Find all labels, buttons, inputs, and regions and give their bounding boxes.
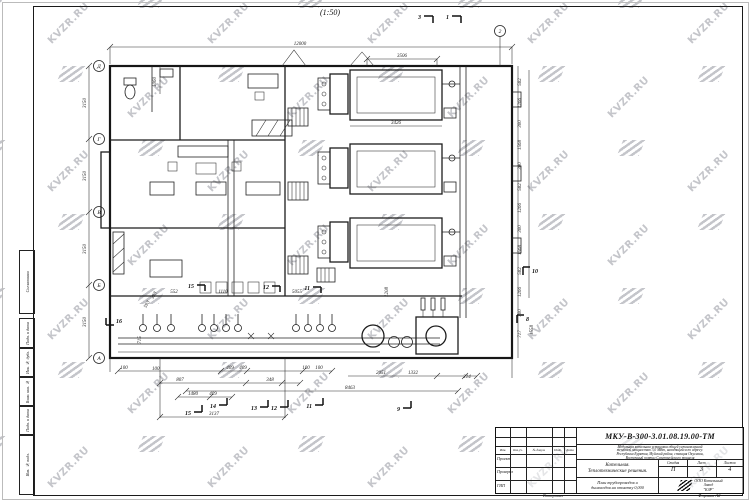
svg-text:1110: 1110: [218, 290, 228, 295]
format-label: Формат А2: [698, 493, 720, 498]
company-logo-icon: [678, 480, 694, 491]
svg-text:13: 13: [251, 406, 257, 412]
svg-text:5055: 5055: [292, 290, 303, 295]
stage-label: Стадия: [659, 460, 687, 467]
scale-label: (1:50): [320, 8, 340, 17]
axis-left-G: Г: [96, 137, 101, 143]
tb-col-dokum: № докум.: [526, 447, 552, 454]
svg-text:300: 300: [518, 225, 523, 233]
floor-plan-svg: (1:50): [0, 0, 750, 500]
room-equipment: [113, 69, 335, 293]
svg-text:15: 15: [185, 411, 191, 417]
svg-text:1: 1: [446, 15, 449, 21]
svg-text:214: 214: [463, 375, 471, 380]
svg-text:11: 11: [306, 404, 312, 410]
stage-table: Стадия Лист Листов П 3 4: [658, 460, 743, 477]
svg-text:100: 100: [315, 366, 323, 371]
sheet-value: 3: [687, 467, 715, 477]
dim-top-3506: 3506: [397, 54, 408, 59]
svg-text:348: 348: [266, 378, 274, 383]
svg-text:1568: 1568: [518, 140, 523, 151]
title-block: Изм. Кол.уч. № докум. Подп. Дата Проект.…: [495, 427, 744, 494]
stage-value: П: [659, 467, 687, 477]
dimension-lines: [86, 44, 529, 420]
tb-col-izm: Изм.: [496, 447, 510, 454]
boiler-body: [350, 218, 442, 268]
svg-text:1480: 1480: [188, 392, 199, 397]
svg-text:9: 9: [397, 407, 400, 413]
svg-text:1266: 1266: [518, 98, 523, 109]
object-name: Котельная. Теплотехнические решения.: [576, 460, 658, 477]
svg-text:16: 16: [116, 319, 122, 325]
sheets-value: 4: [716, 467, 744, 477]
tb-row-proveril: Проверил: [497, 469, 526, 474]
svg-text:593: 593: [144, 300, 152, 309]
boiler-body: [350, 70, 442, 120]
svg-text:8: 8: [526, 317, 529, 323]
svg-text:1060: 1060: [153, 77, 158, 88]
dim-top-overall: 12000: [294, 42, 307, 47]
svg-text:100: 100: [302, 366, 310, 371]
svg-text:582: 582: [518, 78, 523, 86]
svg-text:807: 807: [176, 378, 184, 383]
tb-row-gip: ГИП: [497, 483, 526, 488]
building-walls: [101, 50, 521, 358]
svg-text:3150: 3150: [83, 317, 88, 328]
boiler-unit-1: [288, 70, 460, 126]
svg-text:717: 717: [518, 330, 523, 338]
svg-text:409: 409: [209, 392, 217, 397]
dim-3426: 3426: [391, 121, 402, 126]
svg-text:1266: 1266: [518, 203, 523, 214]
svg-text:12: 12: [263, 285, 269, 291]
dimension-labels: 12000 3506 3426 1060 3150 3150 3150 3150…: [83, 42, 535, 417]
drawing-sheet: KVZR.RUKVZR.RUKVZR.RUKVZR.RUKVZR.RUKVZR.…: [0, 0, 750, 500]
svg-text:8463: 8463: [345, 386, 356, 391]
svg-text:1332: 1332: [408, 371, 419, 376]
copied-label: Копировал: [543, 493, 563, 498]
axis-left-A: А: [96, 356, 101, 362]
pump-skid: [416, 317, 458, 354]
svg-text:3150: 3150: [83, 244, 88, 255]
svg-text:1208: 1208: [385, 287, 390, 298]
svg-text:11: 11: [304, 286, 310, 292]
boiler-unit-3: [288, 218, 460, 274]
tb-row-proekt: Проект.: [497, 456, 526, 461]
axis-bubbles: Д Г В Б А 2: [94, 26, 506, 364]
svg-text:14: 14: [210, 404, 216, 410]
svg-text:1558: 1558: [530, 325, 535, 336]
svg-text:15: 15: [188, 284, 194, 290]
svg-text:2051: 2051: [376, 371, 386, 376]
svg-text:12: 12: [271, 406, 277, 412]
axis-top-2: 2: [499, 29, 502, 35]
svg-text:100: 100: [120, 366, 128, 371]
boiler-body: [350, 144, 442, 194]
svg-text:1266: 1266: [518, 287, 523, 298]
svg-text:582: 582: [518, 183, 523, 191]
project-description: Модульная котельная установка общей уста…: [576, 445, 743, 460]
svg-text:409: 409: [239, 366, 247, 371]
svg-text:3: 3: [417, 15, 421, 21]
drawing-title: План трубопроводов и дымоходов на отметк…: [576, 477, 658, 493]
tb-col-data: Дата: [564, 447, 576, 454]
svg-text:100: 100: [152, 367, 160, 372]
tank-skid: [426, 326, 446, 346]
axis-left-D: Д: [96, 64, 101, 70]
svg-text:300: 300: [518, 162, 523, 170]
piping-pumps: [118, 298, 458, 354]
svg-text:3150: 3150: [83, 171, 88, 182]
svg-text:3137: 3137: [209, 412, 220, 417]
svg-text:409: 409: [226, 366, 234, 371]
boiler-unit-2: [288, 144, 460, 200]
section-markers: 1 3 15 12 11 15 14 13 12 11 9 10 8 16: [106, 15, 538, 417]
company-cell: ООО Котельный Завод "КЗР": [658, 477, 743, 493]
svg-text:552: 552: [170, 290, 178, 295]
axis-left-B: Б: [96, 283, 101, 289]
svg-text:300: 300: [518, 120, 523, 128]
svg-text:1568: 1568: [518, 245, 523, 256]
svg-text:3150: 3150: [83, 98, 88, 109]
tb-col-koluch: Кол.уч.: [510, 447, 526, 454]
tb-col-podp: Подп.: [552, 447, 564, 454]
svg-text:715: 715: [138, 336, 143, 344]
svg-text:10: 10: [532, 269, 538, 275]
doc-number: МКУ-В-300-3.01.08.19.00-ТМ: [576, 428, 743, 445]
